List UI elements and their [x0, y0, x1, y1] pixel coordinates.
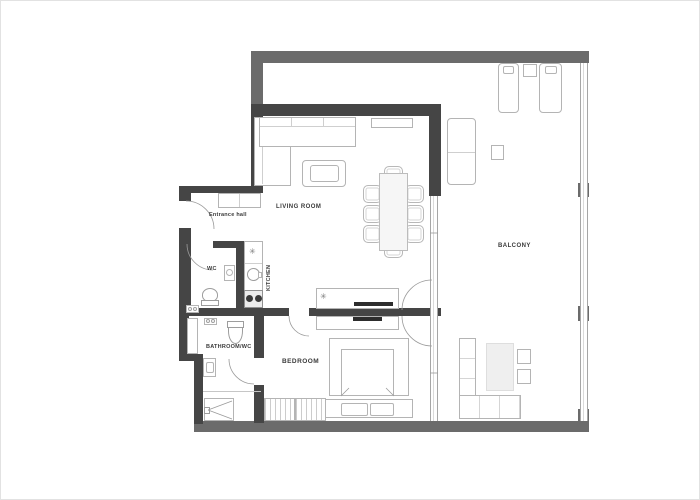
wall-stub-entrance-bottom: [179, 228, 191, 242]
coffee-table-inner: [310, 165, 339, 182]
wall-top-exterior: [251, 51, 589, 63]
wall-stub-entrance-top: [179, 186, 191, 201]
wall-terrace-left: [251, 51, 263, 106]
sideboard: [371, 118, 413, 128]
wc-basin-bowl: [226, 269, 233, 276]
bath-toilet-bowl: [228, 327, 243, 344]
lounger-1-pillow: [503, 66, 514, 74]
sofa-cushion-line-2: [323, 118, 324, 126]
closet-divider: [239, 194, 240, 207]
wall-left-wc: [179, 241, 191, 308]
entrance-hall-label: Entrance hall: [209, 212, 247, 218]
bedroom-door-arc: [289, 316, 309, 336]
fixture1-knob-b: [193, 307, 197, 311]
window-living-bedroom-east: [430, 196, 438, 421]
sofa-main: [259, 117, 356, 147]
wc-toilet-tank: [201, 300, 219, 306]
wall-living-top: [251, 104, 441, 116]
wardrobe-section-1: [264, 398, 295, 421]
bed-pillow-right: [370, 403, 394, 416]
fixture2-knob-b: [211, 319, 215, 323]
burner-right: [255, 295, 262, 302]
dining-table: [379, 173, 408, 251]
burner-left: [246, 295, 253, 302]
bathroom-label: BATHROOM/WC: [206, 344, 251, 350]
bath-basin-inner: [206, 362, 214, 373]
wall-bedroom-stub: [261, 308, 289, 316]
shower-partition: [203, 391, 261, 392]
kitchen-tap: [258, 272, 262, 278]
balcony-rug: [486, 343, 514, 391]
console-star-icon: ✳: [320, 293, 327, 301]
balcony-table-2: [517, 369, 531, 384]
bathroom-shelf: [187, 318, 198, 354]
living-room-label: LIVING ROOM: [276, 204, 321, 210]
floor-plan: ✳ ✳: [0, 0, 700, 500]
bench-divider: [448, 152, 475, 153]
fridge-icon: ✳: [249, 248, 256, 256]
balcony-glass-balustrade: [580, 63, 588, 421]
wall-left-lower: [194, 358, 203, 424]
bed-duvet: [341, 349, 394, 396]
wardrobe-section-2: [295, 398, 326, 421]
balcony-door-living-arc: [402, 280, 432, 310]
wall-living-east: [429, 104, 441, 196]
wall-bedroom-top: [309, 308, 441, 316]
balcony-table-mid: [491, 145, 504, 160]
bed-headboard: [324, 399, 413, 418]
tv-living: [354, 302, 393, 306]
balcony-label: BALCONY: [498, 243, 531, 249]
sofa-back-line: [260, 126, 355, 127]
wall-entrance: [179, 186, 263, 193]
tv-bedroom: [353, 317, 382, 321]
sofa-cushion-line-1: [291, 118, 292, 126]
bed-pillow-left: [341, 403, 368, 416]
balcony-table-1: [517, 349, 531, 364]
wc-label: WC: [207, 266, 217, 272]
bedroom-label: BEDROOM: [282, 358, 319, 365]
bathroom-door-arc: [229, 359, 254, 384]
balcony-table-top: [523, 64, 537, 77]
kitchen-divider-1: [245, 263, 262, 264]
fixture1-knob-a: [188, 307, 192, 311]
balcony-sofa-horizontal: [459, 395, 521, 419]
shower-drain: [204, 407, 210, 414]
fixture2-knob-a: [206, 319, 210, 323]
kitchen-label: KITCHEN: [266, 265, 272, 291]
lounger-2-pillow: [545, 66, 557, 74]
